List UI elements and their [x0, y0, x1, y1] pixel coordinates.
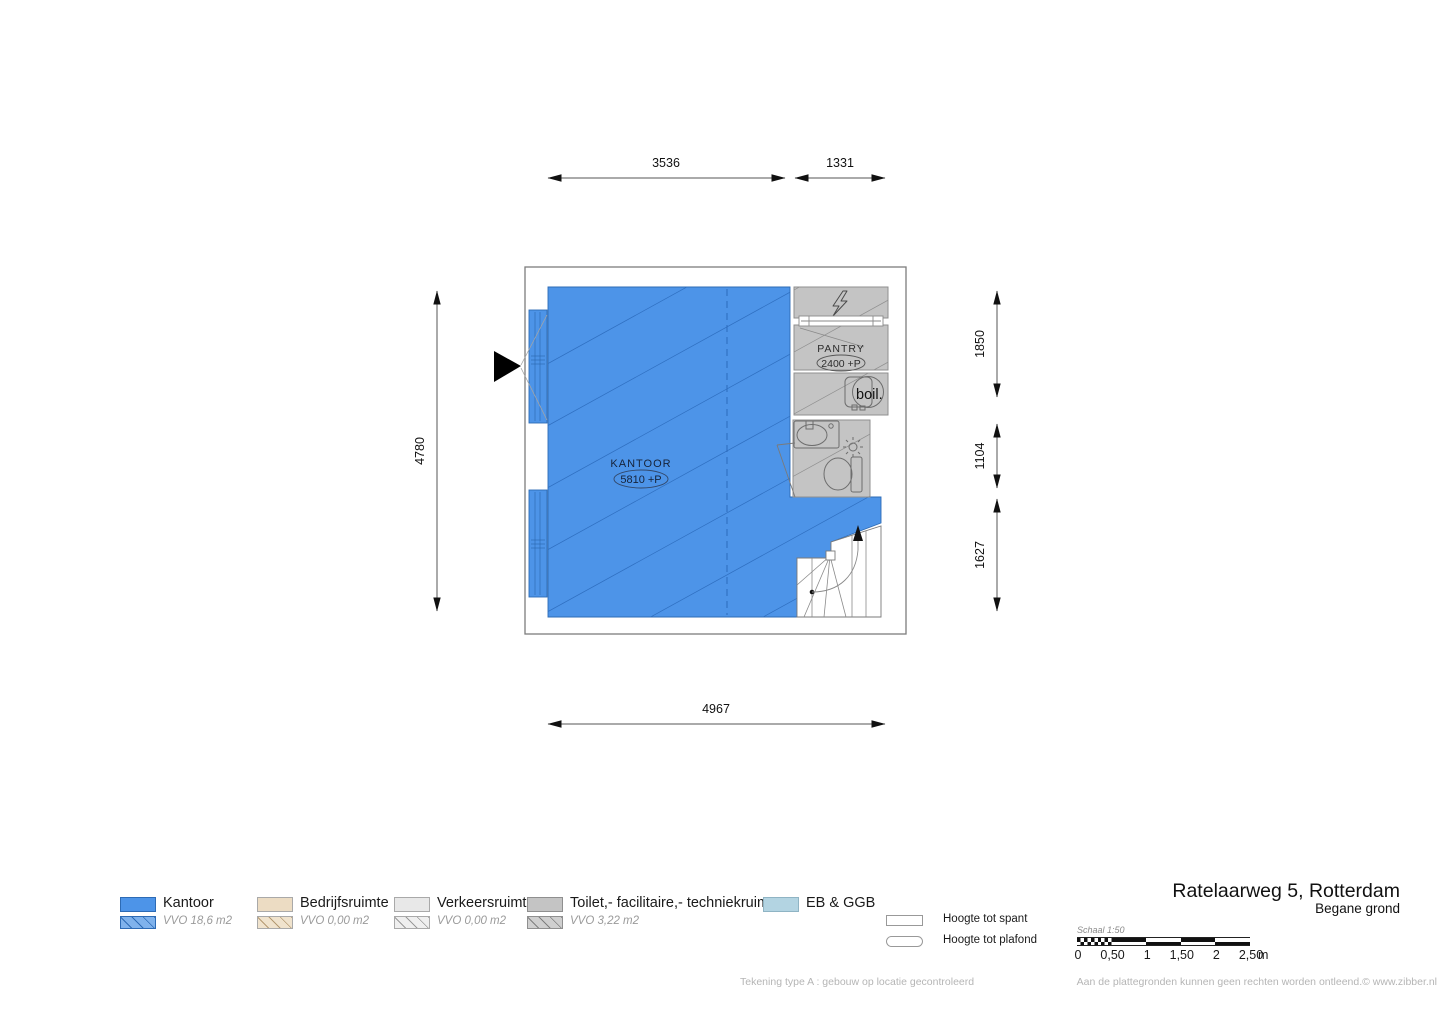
hoogte-spant-label: Hoogte tot spant — [943, 913, 1027, 925]
dim-bottom: 4967 — [702, 702, 730, 716]
entrance-arrow-icon — [494, 351, 521, 382]
kantoor-vvo-label: VVO 18,6 m2 — [163, 915, 232, 927]
dim-right-bottom: 1627 — [973, 541, 987, 569]
pantry-height-label: 2400 +P — [821, 358, 860, 370]
toilet-vvo-label: VVO 3,22 m2 — [570, 915, 639, 927]
scale-tick: 0,50 — [1095, 948, 1131, 962]
dim-right-middle: 1104 — [973, 443, 987, 470]
floor-subtitle: Begane grond — [1315, 901, 1400, 916]
kantoor-height-label: 5810 +P — [620, 474, 661, 486]
scale-unit: m — [1258, 948, 1268, 962]
scalebar-segment — [1112, 938, 1147, 942]
room-meterkast — [794, 287, 888, 318]
toilet-vvo-swatch — [527, 916, 563, 929]
hoogte-plafond-label: Hoogte tot plafond — [943, 934, 1037, 946]
room-bathroom — [793, 420, 870, 497]
footer-disclaimer: Aan de plattegronden kunnen geen rechten… — [1077, 976, 1437, 988]
scale-tick: 1 — [1129, 948, 1165, 962]
boiler-label: boil. — [856, 387, 883, 403]
pantry-window — [799, 316, 883, 326]
pantry-label: PANTRY — [817, 343, 865, 355]
floorplan-canvas: KANTOOR 5810 +P PANTRY 2400 +P boil. 353… — [0, 0, 1440, 1018]
ebggb-swatch — [763, 897, 799, 912]
scale-label: Schaal 1:50 — [1077, 925, 1125, 935]
verkeersruimte-legend-label: Verkeersruimte — [437, 895, 535, 911]
scale-bar — [1077, 937, 1250, 946]
kantoor-vvo-swatch — [120, 916, 156, 929]
dim-left: 4780 — [413, 437, 427, 465]
toilet-legend-label: Toilet,- facilitaire,- techniekruimte — [570, 895, 781, 911]
verkeersruimte-swatch — [394, 897, 430, 912]
scalebar-segment — [1215, 942, 1250, 946]
dim-top-left: 3536 — [652, 156, 680, 170]
page-title: Ratelaarweg 5, Rotterdam — [1172, 880, 1400, 903]
kantoor-legend-label: Kantoor — [163, 895, 214, 911]
hoogte-spant-swatch — [886, 915, 923, 926]
scale-tick: 2 — [1198, 948, 1234, 962]
scalebar-segment — [1146, 942, 1181, 946]
hoogte-plafond-swatch — [886, 936, 923, 947]
verkeersruimte-vvo-label: VVO 0,00 m2 — [437, 915, 506, 927]
kantoor-label: KANTOOR — [610, 458, 671, 470]
window-upper — [529, 310, 547, 423]
bedrijfsruimte-vvo-swatch — [257, 916, 293, 929]
verkeersruimte-vvo-swatch — [394, 916, 430, 929]
ebggb-legend-label: EB & GGB — [806, 895, 875, 911]
dim-right-top: 1850 — [973, 330, 987, 358]
bedrijfsruimte-vvo-label: VVO 0,00 m2 — [300, 915, 369, 927]
bedrijfsruimte-swatch — [257, 897, 293, 912]
dim-top-right: 1331 — [826, 156, 854, 170]
bedrijfsruimte-legend-label: Bedrijfsruimte — [300, 895, 389, 911]
scale-tick: 0 — [1060, 948, 1096, 962]
window-lower — [529, 490, 547, 597]
footer-drawing-type: Tekening type A : gebouw op locatie geco… — [740, 976, 974, 988]
kantoor-swatch — [120, 897, 156, 912]
scalebar-checks — [1077, 942, 1112, 946]
toilet-swatch — [527, 897, 563, 912]
scalebar-segment — [1181, 938, 1216, 942]
scale-tick: 1,50 — [1164, 948, 1200, 962]
